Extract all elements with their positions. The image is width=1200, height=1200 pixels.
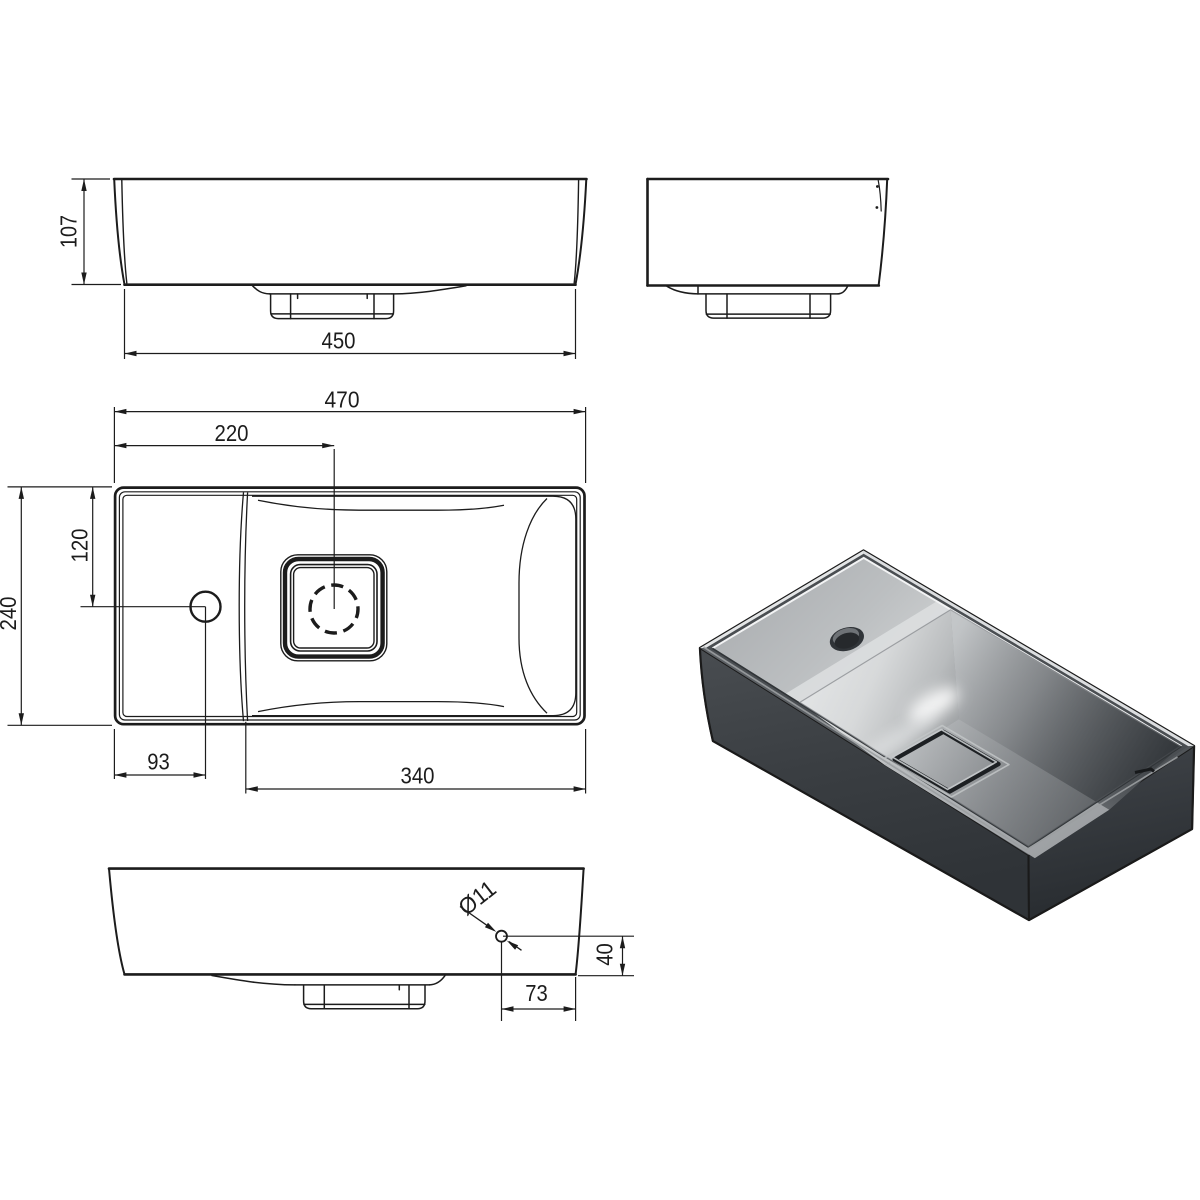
svg-text:220: 220	[215, 420, 249, 446]
svg-text:40: 40	[592, 943, 618, 966]
svg-text:120: 120	[66, 529, 92, 563]
svg-text:470: 470	[325, 387, 360, 413]
svg-text:73: 73	[525, 980, 548, 1006]
svg-text:340: 340	[401, 763, 435, 789]
svg-text:107: 107	[56, 215, 82, 248]
svg-text:93: 93	[147, 749, 170, 775]
svg-text:450: 450	[322, 328, 356, 354]
svg-text:240: 240	[0, 597, 21, 631]
